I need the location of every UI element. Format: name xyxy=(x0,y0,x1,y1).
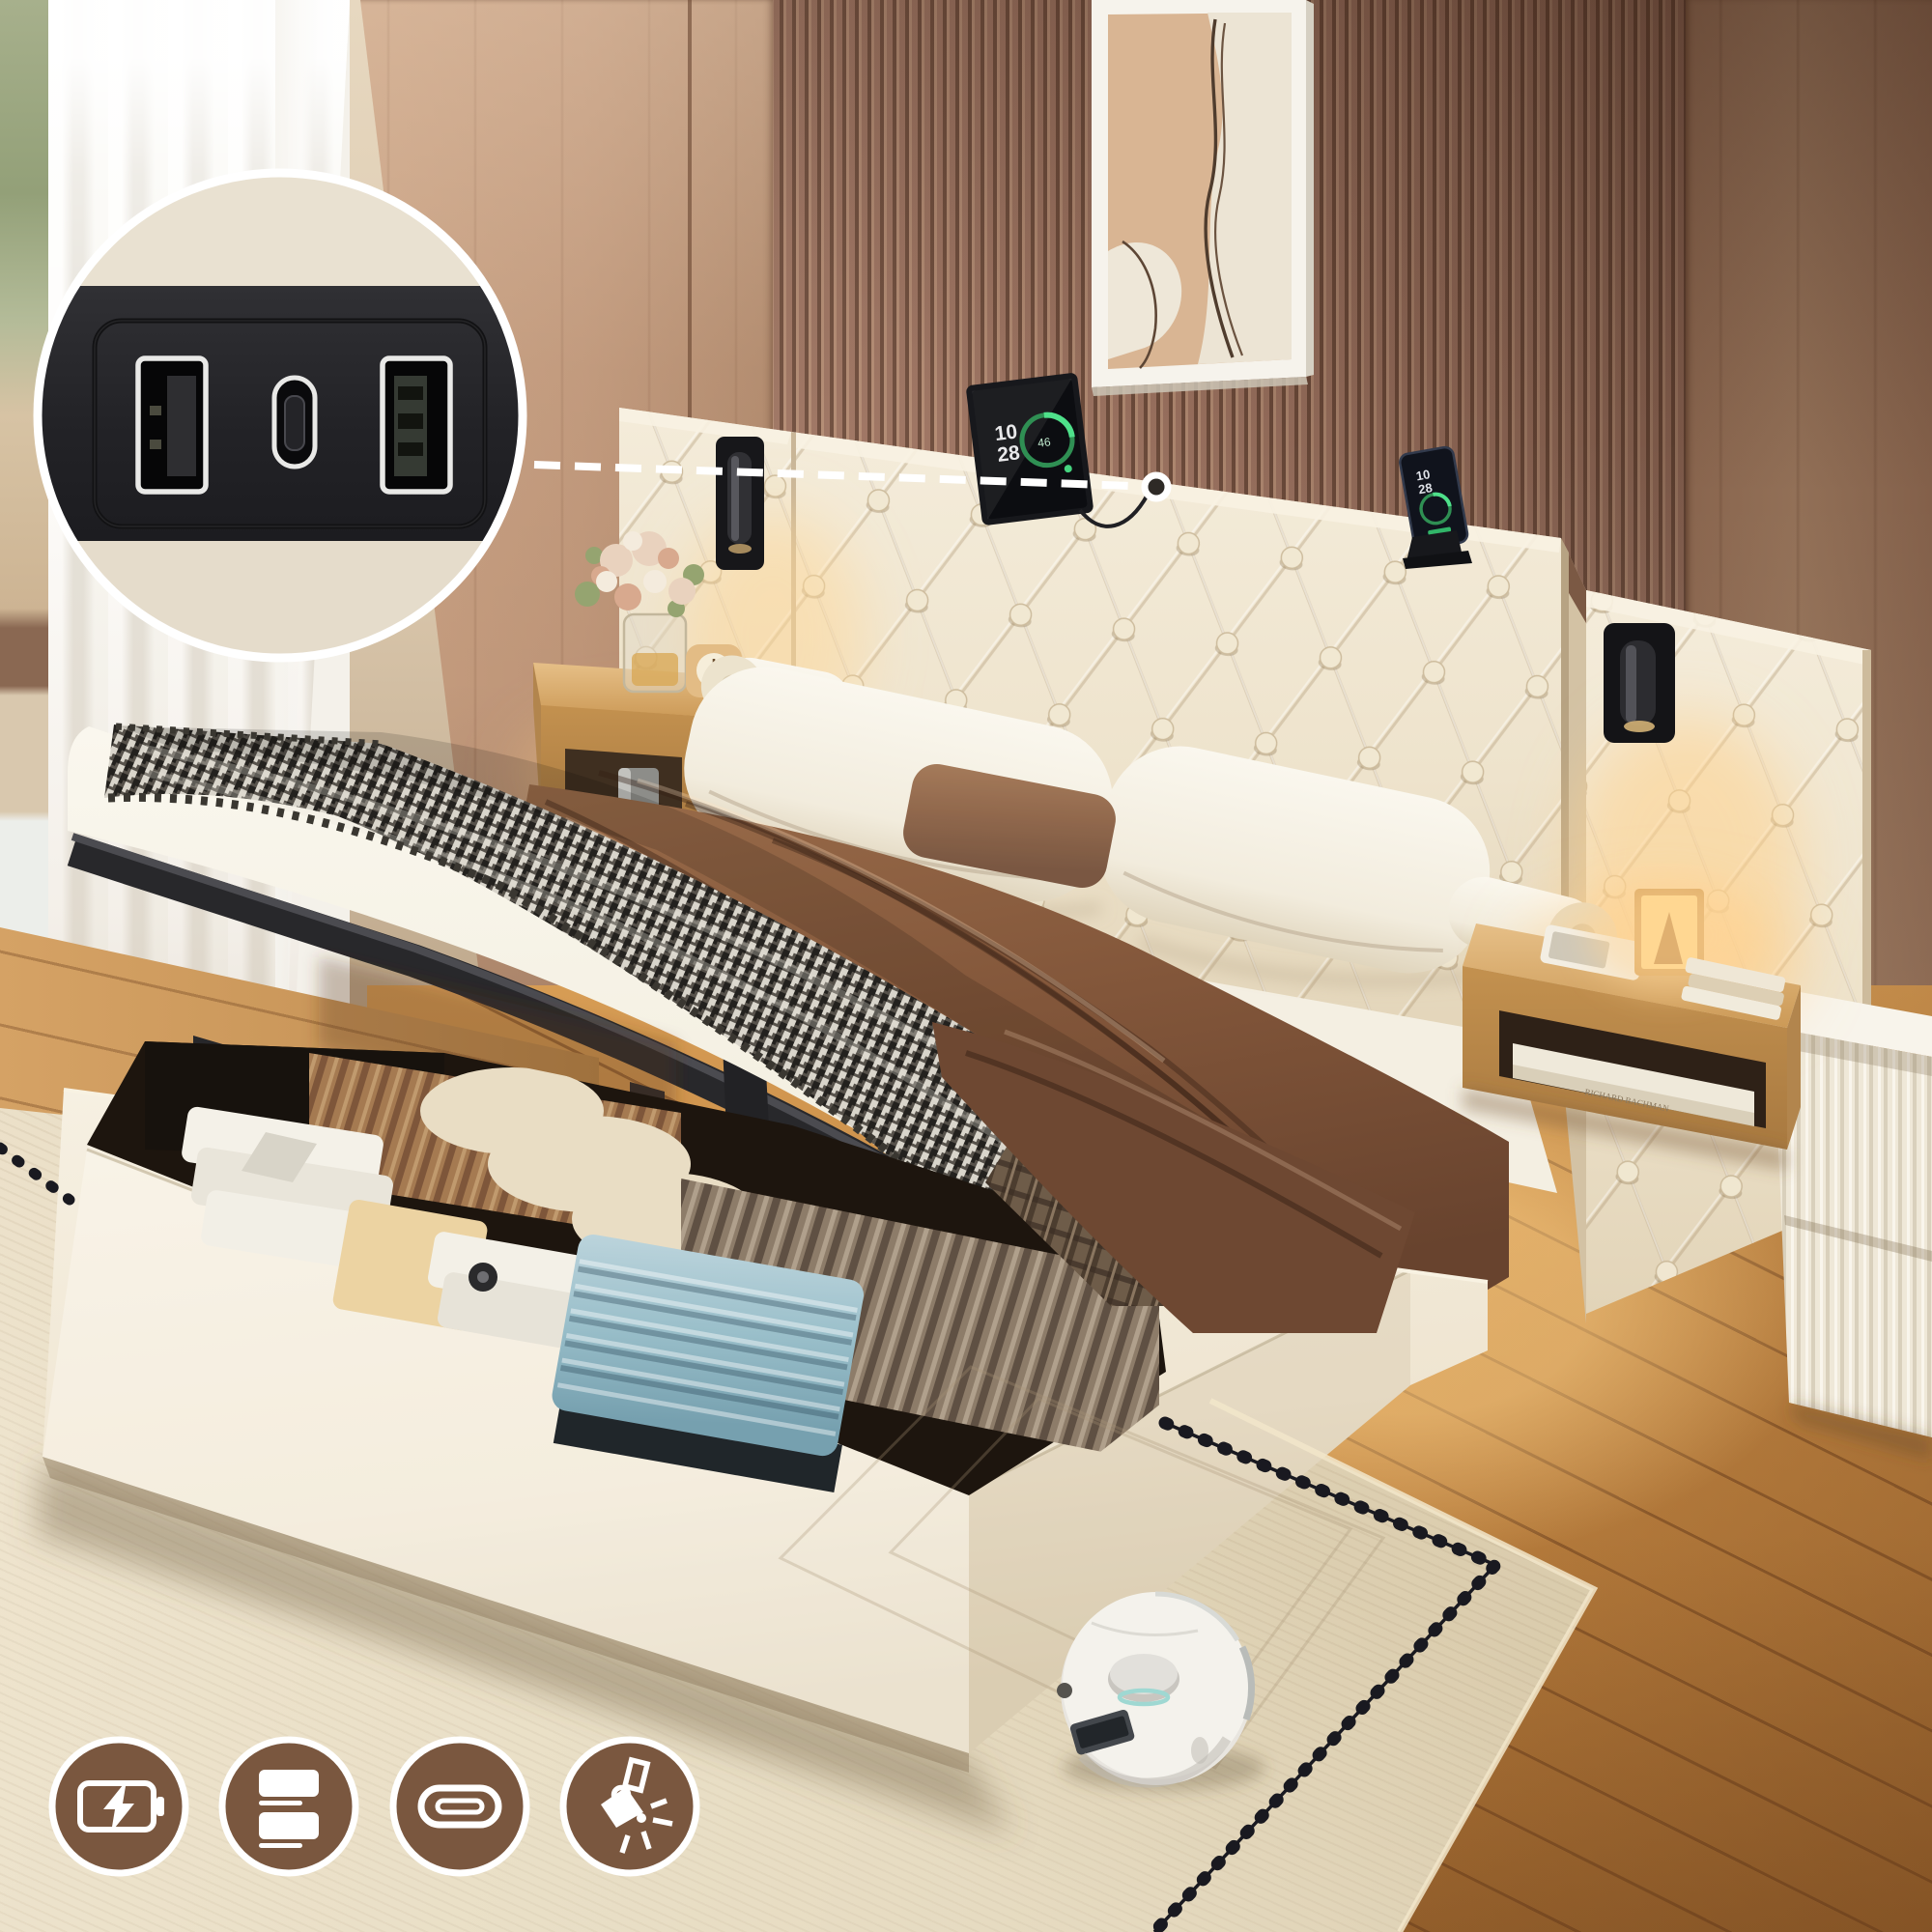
svg-text:46: 46 xyxy=(1037,435,1051,450)
svg-text:28: 28 xyxy=(996,441,1021,467)
